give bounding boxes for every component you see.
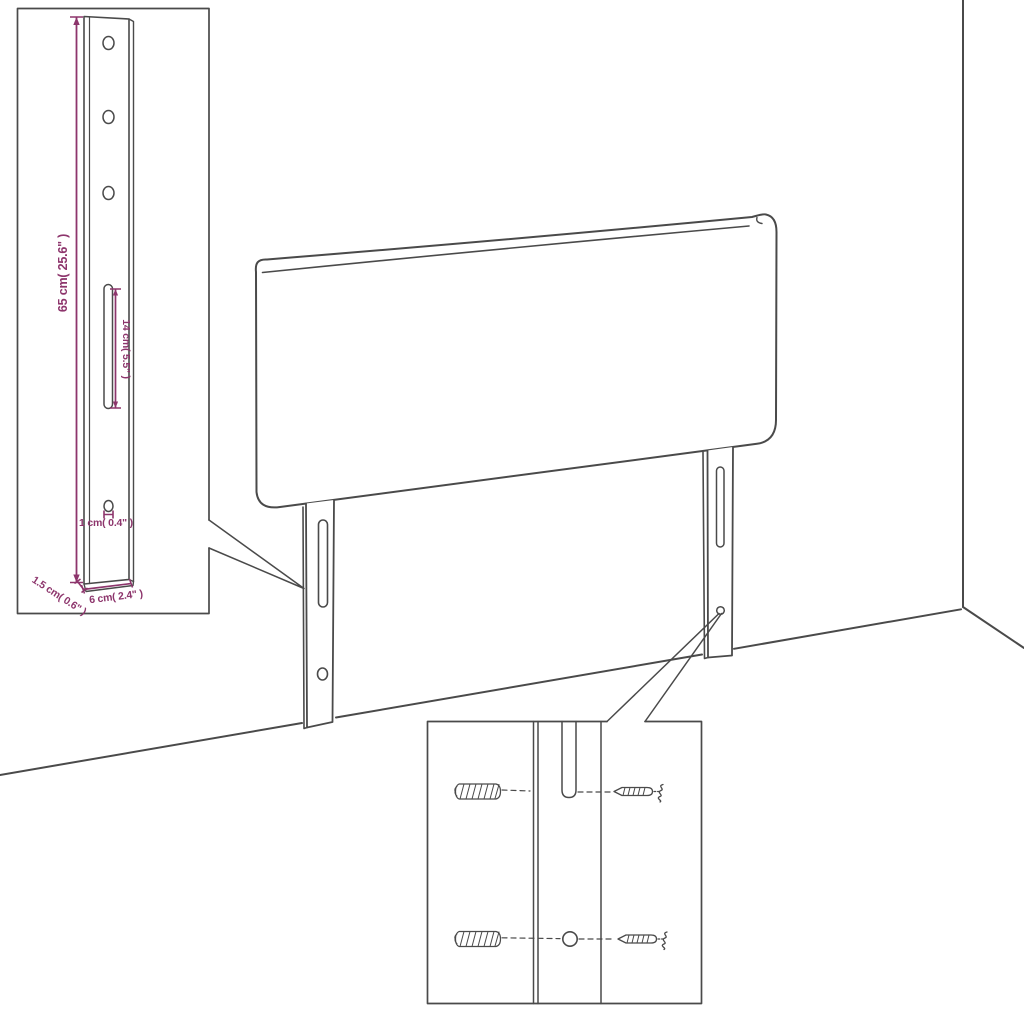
hardware-inset-frame (428, 722, 702, 1004)
hardware-detail-inset (428, 614, 722, 1004)
leg-strip-lines (534, 722, 602, 1004)
headboard-panel (256, 214, 777, 507)
headboard-outline (256, 214, 777, 507)
screw-top (614, 785, 663, 803)
right-leg-face-fill (708, 447, 734, 658)
diagram-canvas (0, 0, 1024, 1024)
left-leg-face-fill (306, 500, 334, 728)
leg-strip-slot (562, 722, 576, 798)
dimension-height-65cm (70, 17, 83, 583)
screw-bottom (618, 932, 667, 950)
left-leg (303, 500, 334, 729)
floor-edge-right (963, 607, 1024, 648)
right-leg (703, 447, 733, 659)
wall-plug-bottom (455, 932, 501, 947)
floor-edge-left (0, 609, 961, 775)
bracket-front-face (84, 17, 129, 585)
leg-strip-hole (563, 932, 577, 946)
label-height-65cm: 65 cm( 25.6" ) (56, 234, 70, 312)
bracket-callout-lines (209, 520, 304, 589)
label-hole-1cm: 1 cm( 0.4" ) (79, 517, 133, 529)
assembly-diagram: 65 cm( 25.6" ) 14 cm( 5.5" ) 1 cm( 0.4" … (0, 0, 1024, 1024)
wall-plug-top (455, 784, 501, 799)
align-dash-bottom-left (502, 938, 560, 939)
align-dash-top-left (502, 790, 530, 791)
label-slot-14cm: 14 cm( 5.5" ) (120, 319, 132, 379)
